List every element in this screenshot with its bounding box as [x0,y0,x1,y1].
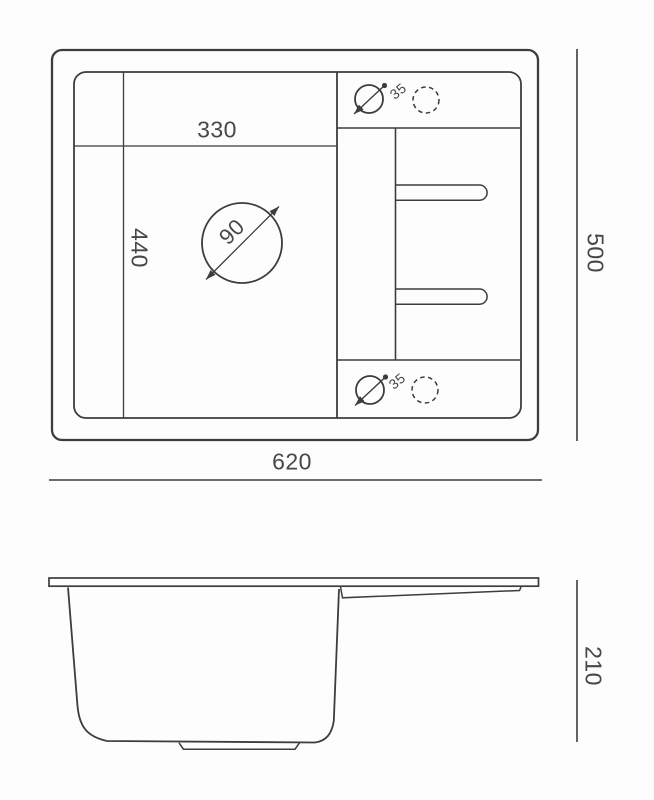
drain-boss-profile [179,743,300,749]
drain-diameter-line [206,207,279,280]
drainboard-groove-bottom [396,289,488,304]
tap-hole-top-alt-dashed-circle [413,87,439,113]
dim-label-bowl-width: 330 [197,117,237,144]
tap-hole-bottom-alt-dashed-circle [412,377,438,403]
dim-label-overall-width: 620 [272,449,312,476]
technical-drawing-canvas: 330 440 90 35 35 500 620 210 [0,0,654,800]
drawing-linework [0,0,654,800]
drainboard-groove-top [396,185,488,200]
bowl-profile [68,588,339,743]
drainboard-profile [341,587,522,598]
dim-label-overall-height: 210 [580,646,607,686]
dim-label-bowl-depth: 440 [126,228,153,268]
rim-profile [49,578,539,586]
dim-label-overall-depth: 500 [582,233,609,273]
side-view [49,578,577,749]
